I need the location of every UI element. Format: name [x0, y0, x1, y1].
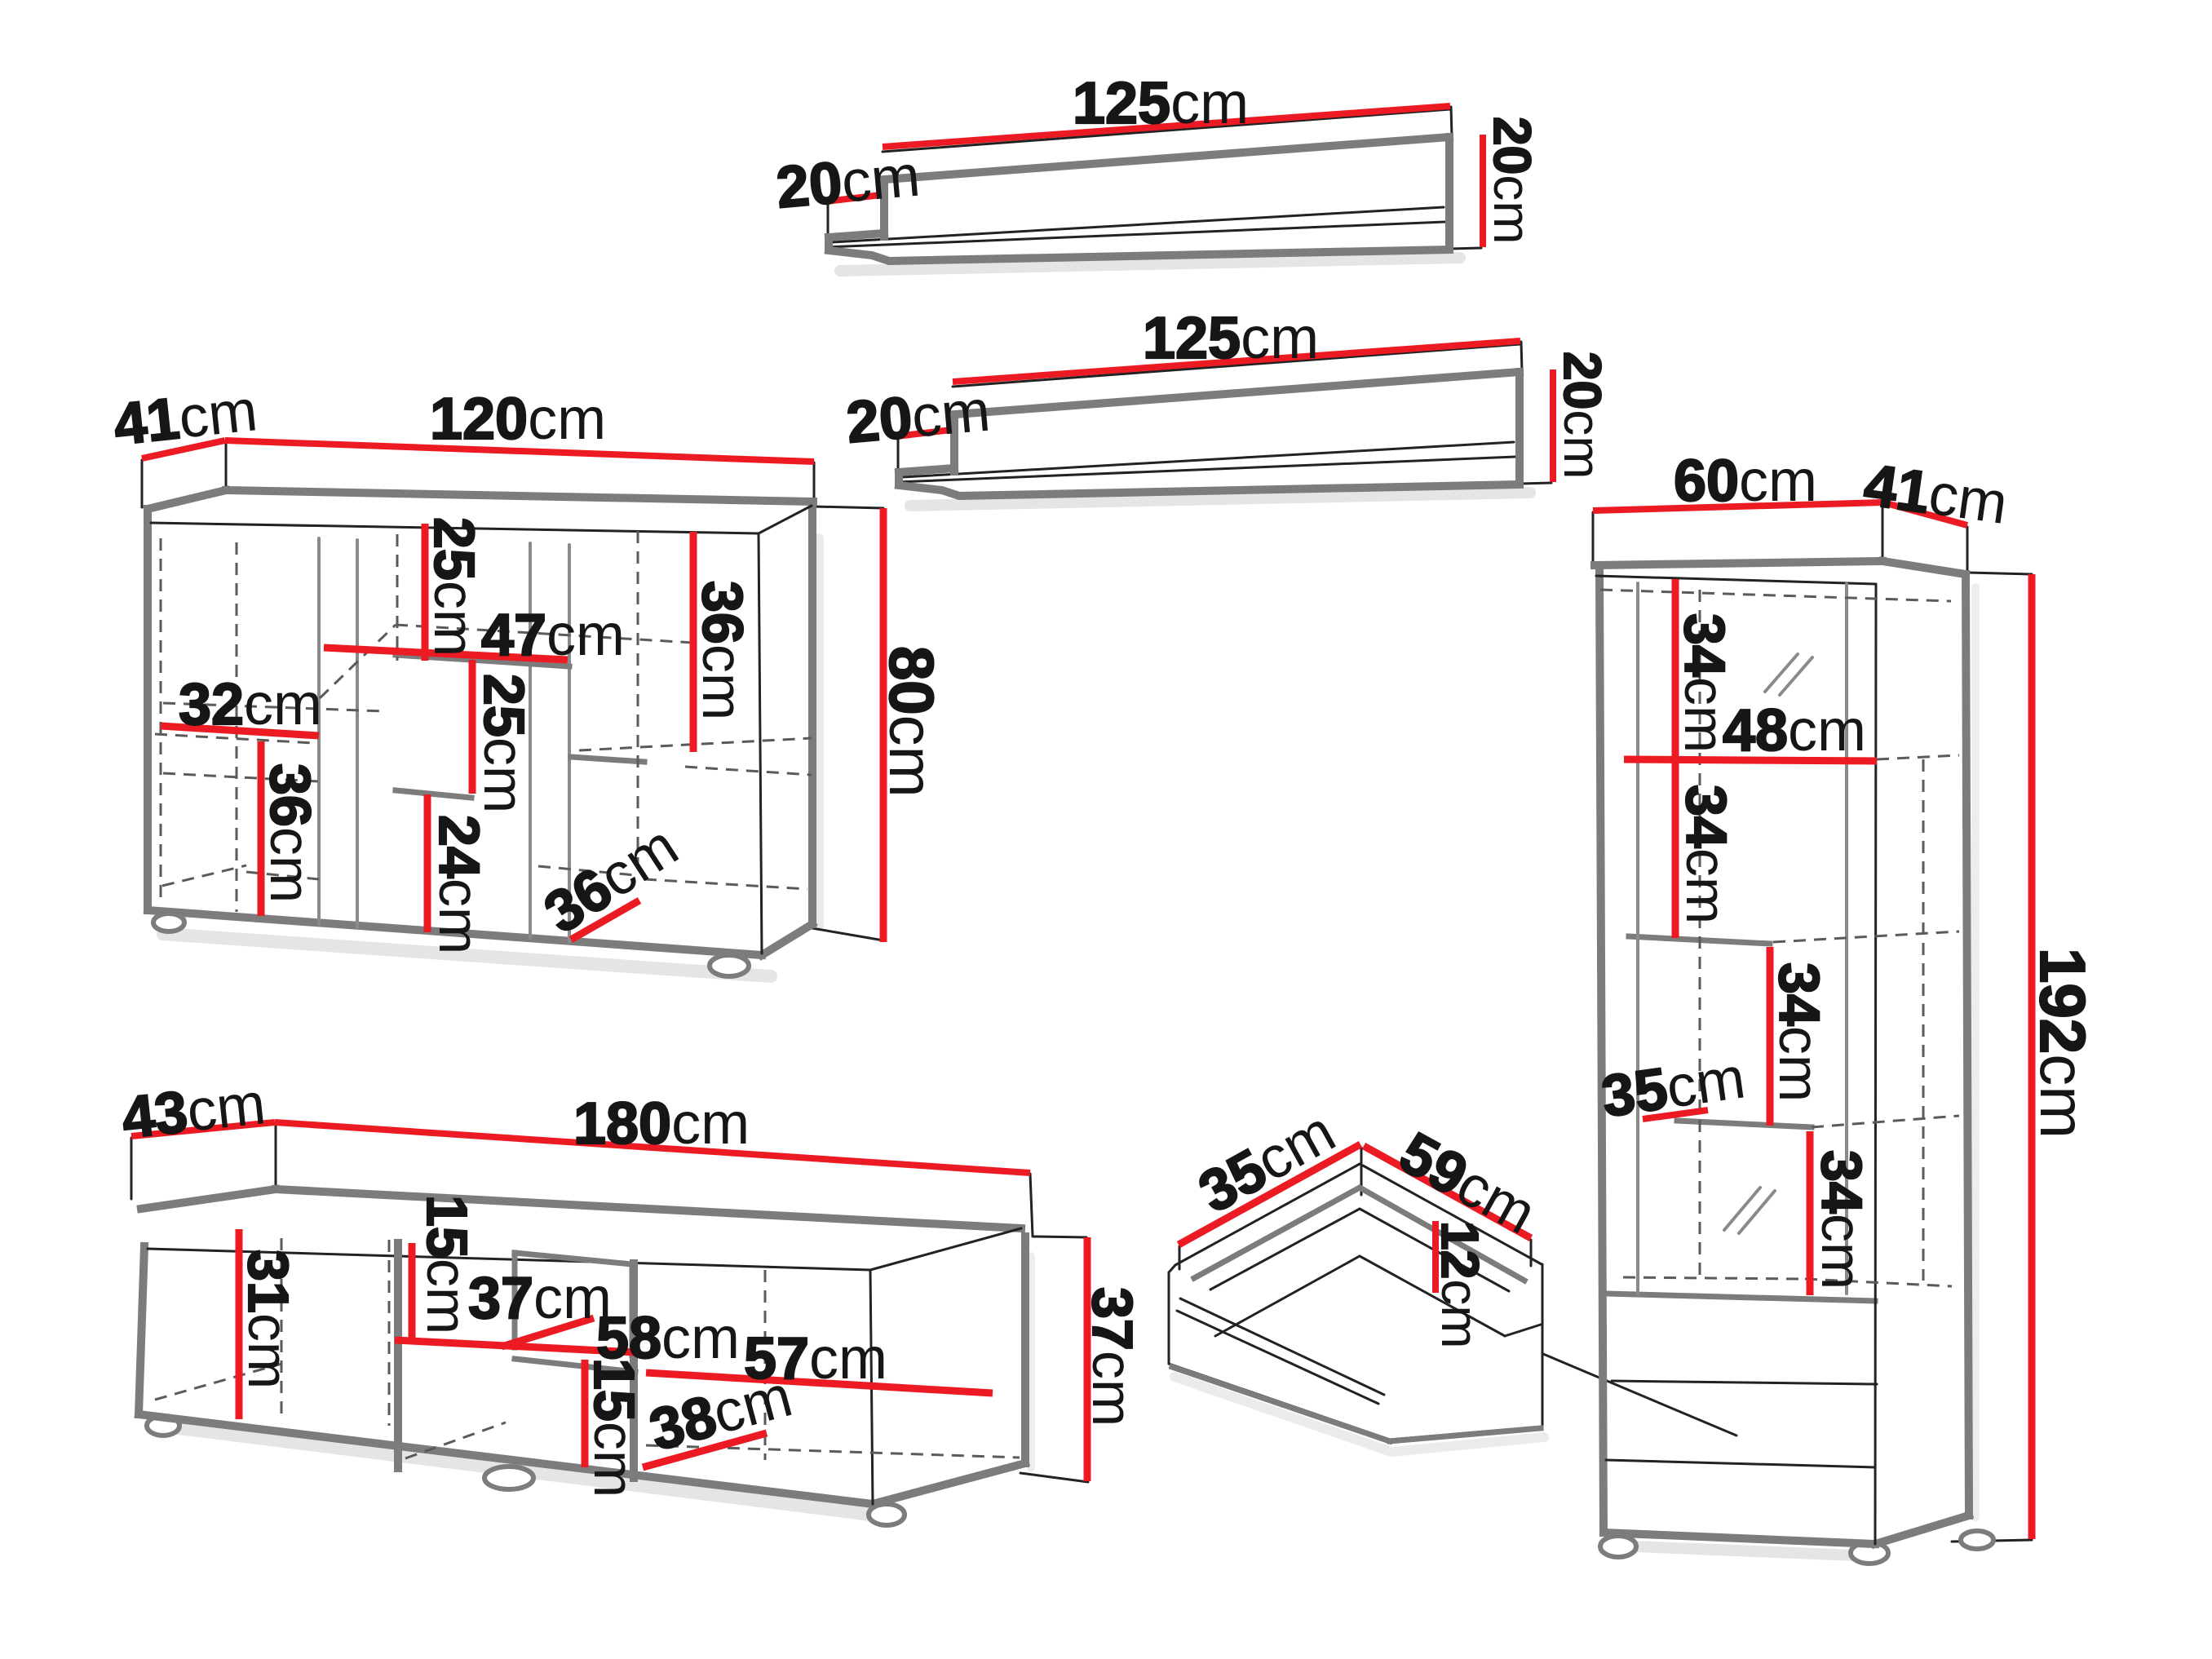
svg-text:34cm: 34cm — [1767, 962, 1831, 1102]
svg-text:80cm: 80cm — [876, 646, 945, 798]
svg-text:47cm: 47cm — [481, 603, 625, 668]
svg-text:25cm: 25cm — [422, 517, 486, 657]
svg-text:37cm: 37cm — [468, 1266, 612, 1331]
svg-text:24cm: 24cm — [427, 815, 491, 954]
svg-text:34cm: 34cm — [1810, 1150, 1874, 1290]
svg-text:180cm: 180cm — [573, 1091, 750, 1157]
svg-text:125cm: 125cm — [1073, 71, 1249, 136]
svg-text:34cm: 34cm — [1674, 785, 1738, 924]
svg-text:25cm: 25cm — [472, 674, 536, 813]
svg-text:36cm: 36cm — [691, 581, 754, 720]
svg-text:32cm: 32cm — [179, 672, 322, 737]
svg-text:20cm: 20cm — [1483, 117, 1542, 245]
svg-text:37cm: 37cm — [1081, 1287, 1144, 1427]
svg-text:192cm: 192cm — [2027, 948, 2099, 1139]
svg-text:12cm: 12cm — [1431, 1221, 1489, 1349]
svg-text:15cm: 15cm — [582, 1358, 646, 1498]
svg-text:48cm: 48cm — [1723, 698, 1866, 763]
svg-text:60cm: 60cm — [1674, 449, 1817, 514]
svg-text:31cm: 31cm — [237, 1250, 300, 1389]
svg-text:36cm: 36cm — [259, 763, 322, 903]
svg-text:20cm: 20cm — [774, 144, 922, 221]
svg-text:120cm: 120cm — [430, 387, 606, 452]
